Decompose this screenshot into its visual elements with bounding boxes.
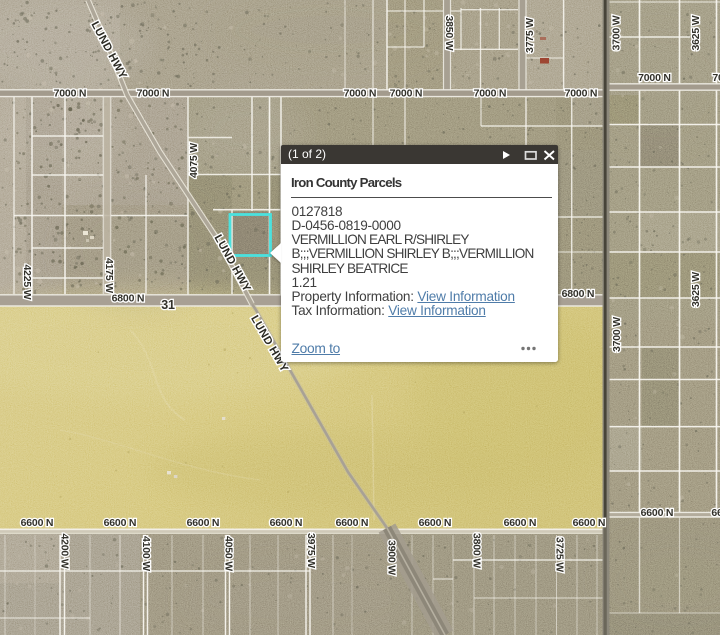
- svg-text:6600 N: 6600 N: [187, 517, 220, 529]
- svg-text:6600 N: 6600 N: [573, 517, 606, 529]
- svg-text:31: 31: [161, 298, 175, 312]
- svg-text:7000 N: 7000 N: [565, 87, 598, 99]
- svg-text:4050 W: 4050 W: [222, 536, 234, 571]
- svg-text:7000 N: 7000 N: [390, 87, 423, 99]
- svg-text:3700 W: 3700 W: [611, 15, 623, 50]
- svg-text:6600 N: 6600 N: [270, 517, 303, 529]
- svg-text:3625 W: 3625 W: [690, 272, 702, 307]
- svg-text:7000 N: 7000 N: [344, 87, 377, 99]
- svg-text:3850 W: 3850 W: [443, 16, 455, 51]
- svg-text:4225 W: 4225 W: [21, 265, 33, 300]
- svg-text:66: 66: [711, 507, 720, 519]
- svg-text:4075 W: 4075 W: [188, 143, 200, 178]
- svg-text:4100 W: 4100 W: [140, 536, 152, 571]
- svg-text:6800 N: 6800 N: [562, 288, 595, 300]
- svg-text:3625 W: 3625 W: [690, 15, 702, 50]
- svg-text:3800 W: 3800 W: [470, 533, 482, 568]
- svg-text:3900 W: 3900 W: [385, 540, 397, 575]
- svg-text:6600 N: 6600 N: [419, 517, 452, 529]
- svg-text:7000 N: 7000 N: [54, 87, 87, 99]
- svg-text:6800 N: 6800 N: [112, 293, 145, 305]
- svg-text:6600 N: 6600 N: [504, 517, 537, 529]
- svg-text:3775 W: 3775 W: [524, 18, 536, 53]
- svg-text:6600 N: 6600 N: [641, 507, 674, 519]
- svg-text:6600 N: 6600 N: [21, 517, 54, 529]
- svg-text:4200 W: 4200 W: [58, 534, 70, 569]
- svg-text:7000 N: 7000 N: [474, 87, 507, 99]
- svg-text:6600 N: 6600 N: [104, 517, 137, 529]
- svg-text:3975 W: 3975 W: [305, 533, 317, 568]
- svg-text:7000 N: 7000 N: [638, 72, 671, 84]
- svg-text:3725 W: 3725 W: [553, 537, 565, 572]
- svg-text:70: 70: [712, 72, 720, 84]
- svg-text:6600 N: 6600 N: [336, 517, 369, 529]
- svg-text:3700 W: 3700 W: [611, 317, 623, 352]
- svg-text:7000 N: 7000 N: [137, 87, 170, 99]
- svg-text:4175 W: 4175 W: [103, 258, 115, 293]
